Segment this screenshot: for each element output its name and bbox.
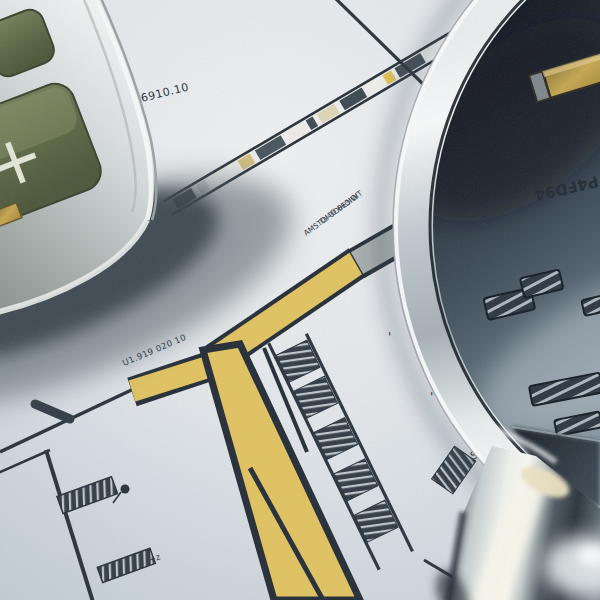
film-grain bbox=[0, 0, 600, 600]
photo-blueprint-scene: ' ' 6910.10 AMSTOI 3OIHOIW D/4O 6E3IOIT … bbox=[0, 0, 600, 600]
scene-canvas: ' ' 6910.10 AMSTOI 3OIHOIW D/4O 6E3IOIT … bbox=[0, 0, 600, 600]
